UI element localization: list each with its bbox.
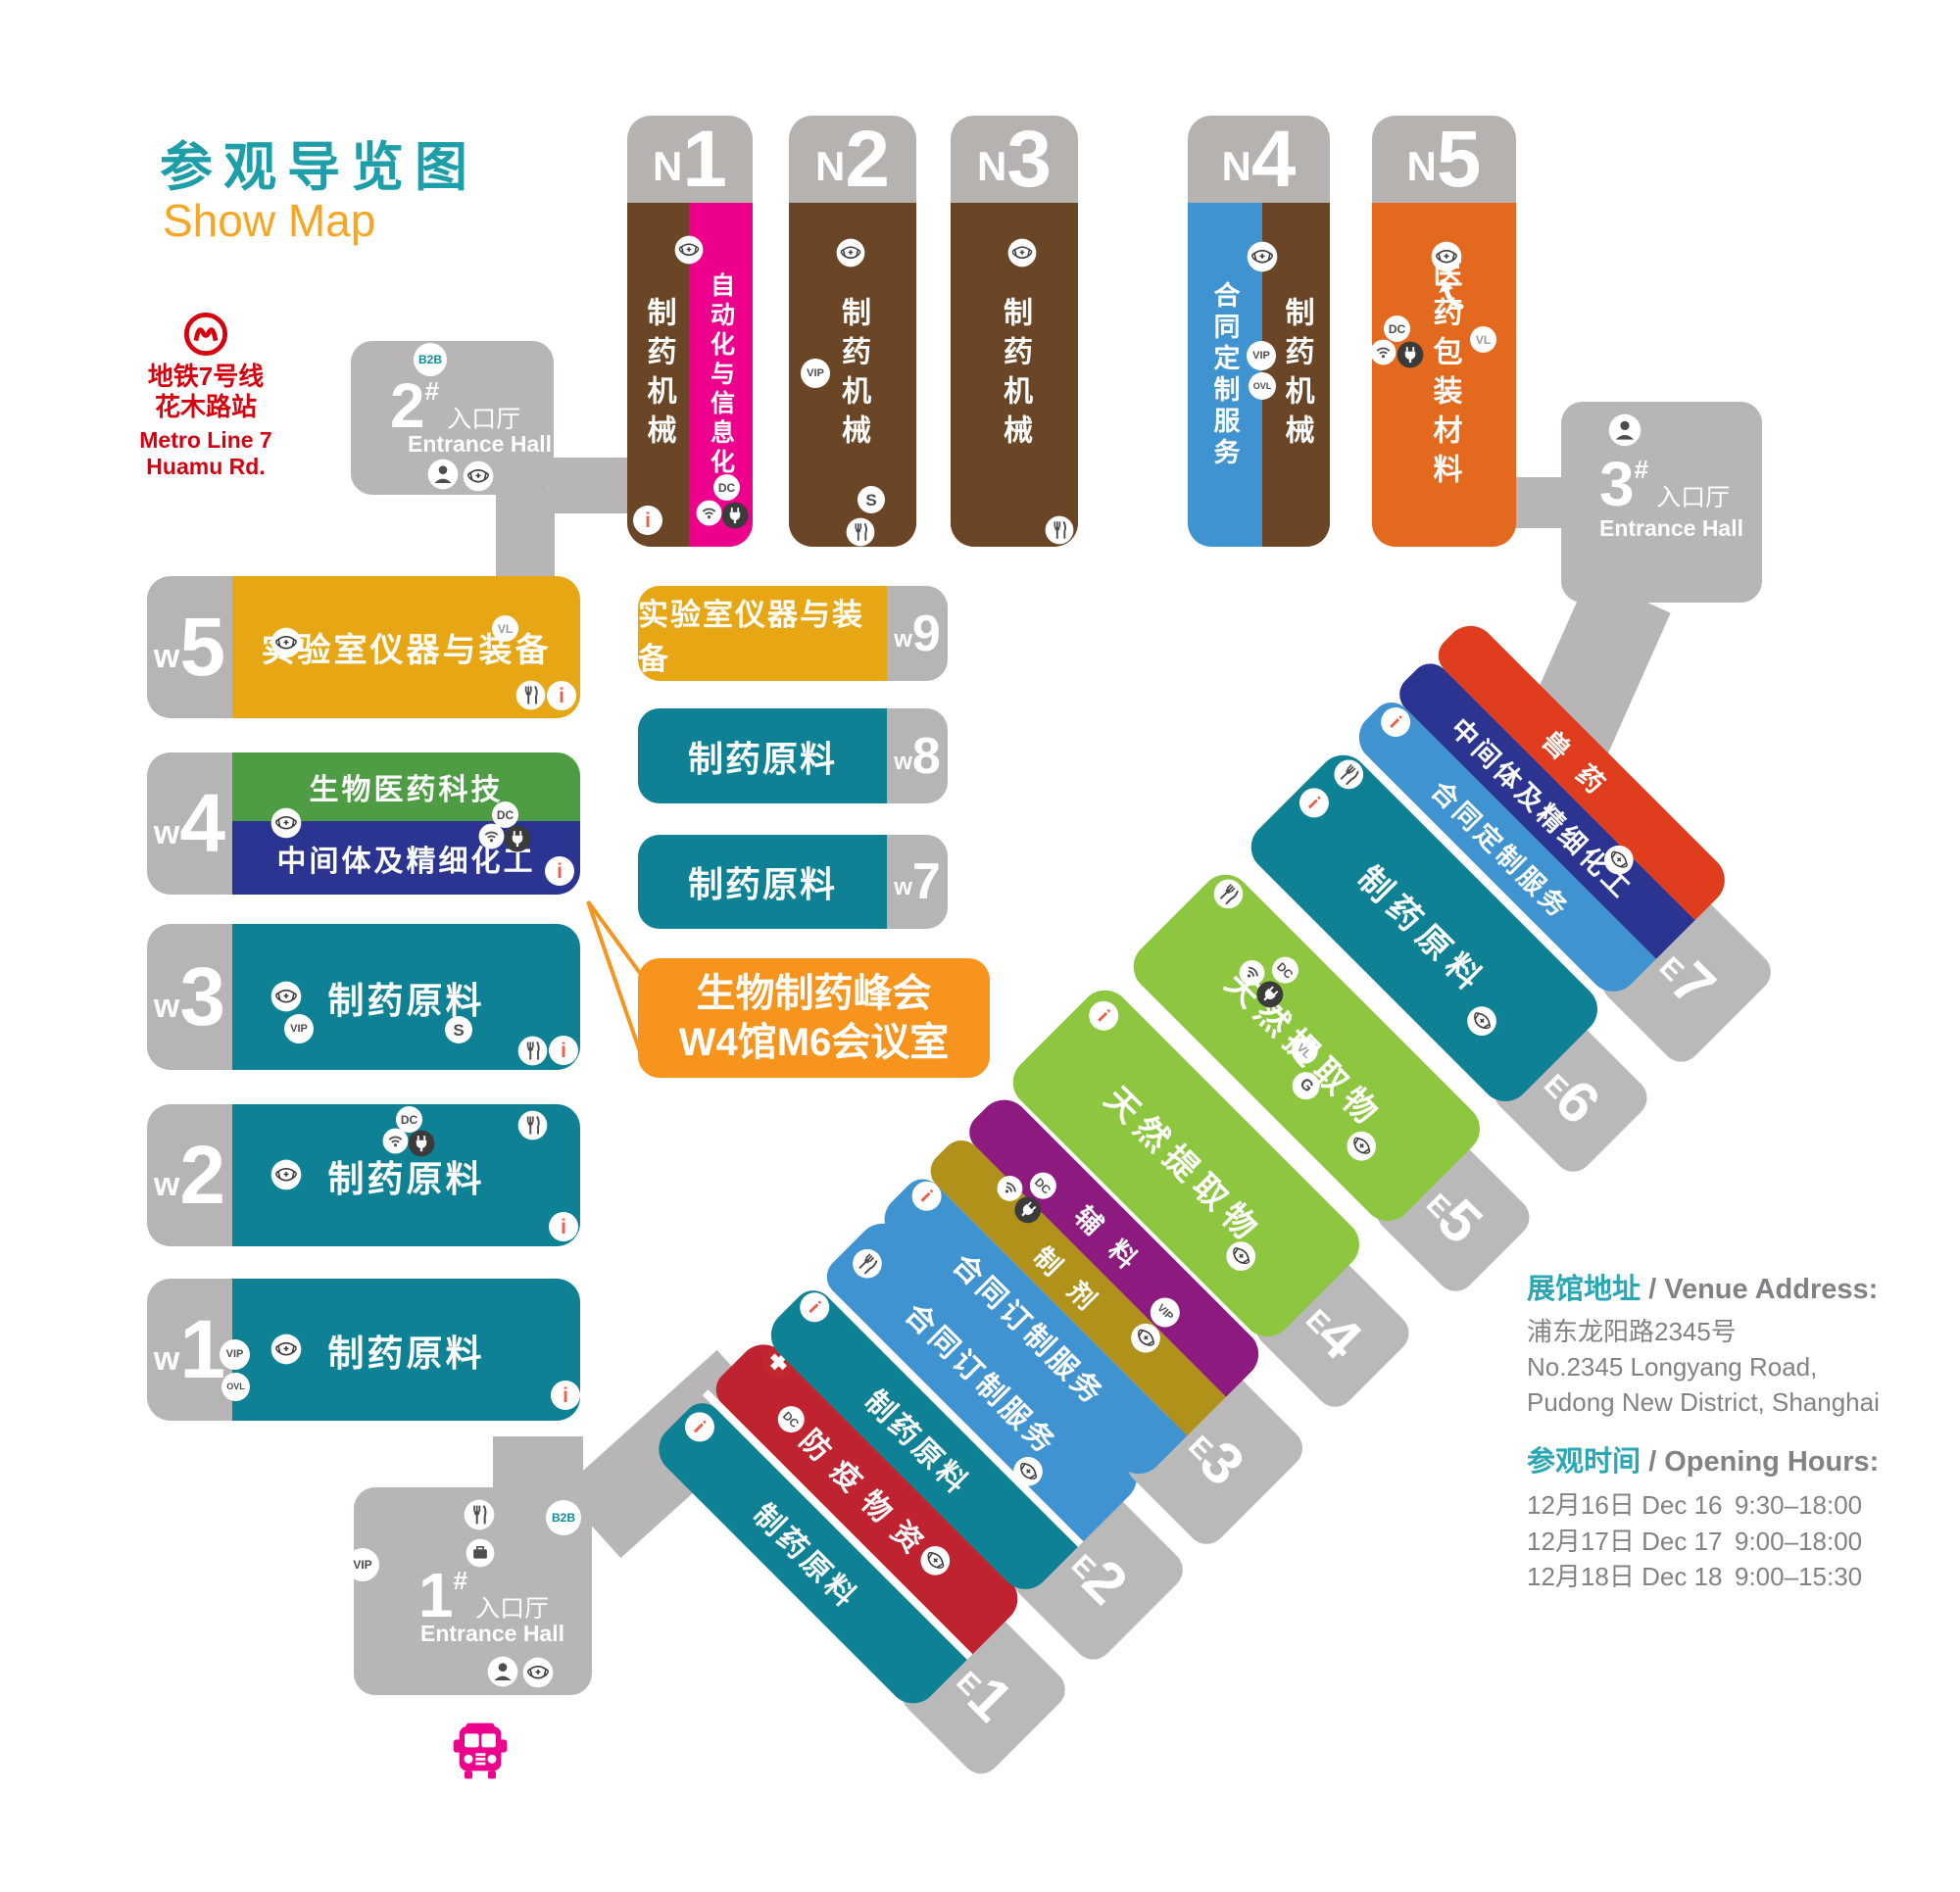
hall-w1-number: 1 — [179, 1302, 225, 1397]
hall-w8-number: 8 — [912, 727, 941, 786]
entrance2-hash: # — [425, 376, 439, 406]
hours-row2-time: 9:00–18:00 — [1735, 1524, 1862, 1560]
mask-icon — [270, 981, 302, 1012]
hall-w8: 制药原料 w8 — [638, 708, 948, 803]
hall-w9-letter: w — [894, 626, 912, 654]
hours-row1-time: 9:30–18:00 — [1735, 1487, 1862, 1524]
mask-icon — [270, 1159, 302, 1190]
show-map-canvas: 参观导览图 Show Map 地铁7号线 花木路站 Metro Line 7 H… — [0, 0, 1960, 1892]
hall-n1-number: 1 — [682, 116, 727, 206]
hall-w8-letter: w — [894, 749, 912, 776]
info-badge: i — [549, 1036, 578, 1065]
info-badge: i — [545, 856, 574, 886]
hall-n2: N2 制药机械 VIP S — [789, 116, 916, 547]
hall-w1: w1 制药原料 VIP OVL i — [147, 1279, 580, 1421]
fork-knife-icon — [515, 680, 546, 710]
venue-address-header-cn: 展馆地址 — [1527, 1274, 1641, 1305]
person-icon — [1608, 413, 1641, 447]
hall-w5-number: 5 — [179, 600, 225, 695]
hours-row3-time: 9:00–15:30 — [1735, 1559, 1862, 1595]
hall-w5: w5 实验室仪器与装备 VL i — [147, 576, 580, 718]
hall-e6-zone1-label: 制药原料 — [1349, 853, 1499, 1003]
plug-icon — [1396, 341, 1424, 368]
hall-w7-zone1-label: 制药原料 — [688, 856, 837, 907]
page-title-cn: 参观导览图 — [160, 123, 478, 201]
hall-w7: 制药原料 w7 — [638, 835, 948, 929]
hours-row2-date-cn: 12月17日 — [1527, 1527, 1635, 1556]
ovl-badge: OVL — [221, 1373, 250, 1401]
hall-n1-header: N1 — [627, 116, 753, 203]
hall-w7-letter: w — [894, 874, 912, 901]
hall-n2-number: 2 — [845, 116, 890, 206]
connector-entrance2-n1 — [549, 458, 637, 513]
opening-hours-header-en: Opening Hours: — [1664, 1446, 1879, 1478]
entrance2-label-cn: 入口厅 — [447, 406, 520, 433]
entrance-hall-3: 3#入口厅 Entrance Hall — [1561, 402, 1762, 603]
hall-w3-label: w3 — [147, 924, 232, 1070]
hall-w4-label: w4 — [147, 752, 232, 895]
vip-badge: VIP — [346, 1548, 379, 1581]
metro-line-en: Metro Line 7 — [127, 427, 284, 454]
s-badge: S — [857, 486, 885, 513]
info-badge: i — [551, 1381, 580, 1410]
page-title-en: Show Map — [163, 194, 375, 247]
metro-station-en: Huamu Rd. — [127, 454, 284, 480]
hall-n5-number: 5 — [1437, 116, 1482, 206]
s-badge: S — [445, 1016, 472, 1043]
hall-w3-number: 3 — [179, 949, 225, 1044]
summit-callout: 生物制药峰会 W4馆M6会议室 — [638, 958, 990, 1078]
fork-knife-icon — [517, 1036, 548, 1066]
opening-hours-header: 参观时间 / Opening Hours: — [1527, 1438, 1938, 1480]
hall-n3-number: 3 — [1006, 116, 1052, 206]
hall-n3-header: N3 — [951, 116, 1078, 203]
metro-station-cn: 花木路站 — [127, 392, 284, 422]
hall-n2-letter: N — [815, 143, 845, 190]
briefcase-icon — [465, 1538, 495, 1568]
opening-hours-row: 12月17日 Dec 17 9:00–18:00 — [1527, 1524, 1938, 1560]
metro-info: 地铁7号线 花木路站 Metro Line 7 Huamu Rd. — [127, 312, 284, 481]
hall-w3-letter: w — [154, 988, 179, 1026]
hall-w4-number: 4 — [179, 776, 225, 871]
hall-n4-zone1-label: 合同定制服务 — [1206, 281, 1245, 469]
hall-n5-letter: N — [1407, 143, 1437, 190]
hall-w5-letter: w — [154, 638, 179, 676]
dc-badge: DC — [1384, 315, 1410, 342]
vip-badge: VIP — [220, 1339, 250, 1370]
hall-n1-zone1-label: 制药机械 — [637, 297, 680, 454]
fork-knife-icon — [464, 1499, 495, 1530]
vip-badge: VIP — [801, 359, 830, 388]
venue-address-separator: / — [1648, 1274, 1656, 1305]
entrance3-label-en: Entrance Hall — [1599, 515, 1743, 542]
opening-hours-header-cn: 参观时间 — [1527, 1446, 1641, 1478]
hall-w2-letter: w — [154, 1166, 179, 1204]
mask-icon — [674, 235, 704, 265]
plug-icon — [504, 825, 531, 852]
hall-w9-label: w9 — [887, 586, 948, 681]
hall-n5: N5 医药包装材料 DC VL — [1372, 116, 1516, 547]
hall-n4: N4 合同定制服务 制药机械 VIP OVL — [1188, 116, 1330, 547]
plug-icon — [408, 1130, 435, 1157]
hall-w1-zone1-label: 制药原料 — [328, 1324, 485, 1377]
venue-address-header: 展馆地址 / Venue Address: — [1527, 1266, 1938, 1307]
hall-w9-number: 9 — [912, 605, 941, 663]
hall-n1-zone2-label: 自动化与信息化 — [704, 272, 739, 478]
entrance1-hash: # — [454, 1566, 467, 1595]
vl-badge: VL — [1470, 326, 1496, 353]
hall-w2-label: w2 — [147, 1104, 232, 1246]
hall-w4-letter: w — [154, 814, 179, 852]
wifi-icon — [1372, 339, 1396, 365]
hours-row1-date-cn: 12月16日 — [1527, 1490, 1635, 1520]
hall-w9: 实验室仪器与装备 w9 — [638, 586, 948, 681]
info-badge: i — [547, 681, 576, 710]
hall-n3-letter: N — [977, 143, 1006, 190]
wifi-icon — [696, 500, 722, 526]
info-badge: i — [633, 506, 662, 535]
mask-icon — [270, 1334, 302, 1365]
wifi-icon — [382, 1128, 409, 1154]
hall-w1-letter: w — [154, 1340, 179, 1379]
b2b-badge: B2B — [546, 1500, 581, 1535]
venue-address-line2: No.2345 Longyang Road, — [1527, 1350, 1938, 1385]
hall-n4-number: 4 — [1251, 116, 1297, 206]
vl-badge: VL — [492, 615, 518, 642]
mask-icon — [1247, 241, 1278, 272]
hall-w4: w4 生物医药科技 中间体及精细化工 DC i — [147, 752, 580, 895]
mask-icon — [270, 627, 302, 658]
hall-w2: w2 制药原料 DC i — [147, 1104, 580, 1246]
hall-w9-zone1-label: 实验室仪器与装备 — [638, 590, 887, 678]
ovl-badge: OVL — [1249, 372, 1276, 400]
hall-n4-zone2-label: 制药机械 — [1275, 297, 1318, 454]
mask-icon — [270, 807, 302, 839]
wifi-icon — [478, 823, 505, 849]
curved-arrow-icon — [1429, 272, 1472, 315]
connector-entrance2-w5 — [496, 488, 555, 578]
summit-callout-line1: 生物制药峰会 — [697, 969, 932, 1018]
hall-n3-zone1-label: 制药机械 — [993, 297, 1036, 454]
vip-badge: VIP — [1247, 341, 1276, 370]
hall-w5-label: w5 — [147, 576, 232, 718]
person-icon — [487, 1656, 518, 1687]
mask-icon — [836, 238, 865, 267]
venue-address-line3: Pudong New District, Shanghai — [1527, 1385, 1938, 1421]
mask-icon — [1007, 238, 1037, 267]
venue-address-header-en: Venue Address: — [1664, 1274, 1878, 1305]
hall-n4-letter: N — [1222, 143, 1251, 190]
hours-row3-date-cn: 12月18日 — [1527, 1562, 1635, 1591]
plug-icon — [721, 502, 749, 529]
hall-n3: N3 制药机械 — [951, 116, 1078, 547]
metro-logo-icon — [183, 312, 228, 357]
hall-w2-zone1-label: 制药原料 — [328, 1149, 485, 1202]
opening-hours-row: 12月16日 Dec 16 9:30–18:00 — [1527, 1487, 1938, 1524]
fork-knife-icon — [1045, 515, 1074, 545]
hours-row1-date-en: Dec 16 — [1641, 1490, 1722, 1520]
entrance3-number: 3 — [1599, 449, 1635, 519]
hall-w3: w3 制药原料 VIP S i — [147, 924, 580, 1070]
entrance3-hash: # — [1635, 455, 1648, 484]
hours-row3-date-en: Dec 18 — [1641, 1562, 1722, 1591]
venue-info: 展馆地址 / Venue Address: 浦东龙阳路2345号 No.2345… — [1527, 1266, 1938, 1595]
person-icon — [427, 459, 459, 490]
fork-knife-icon — [517, 1110, 548, 1140]
vip-badge: VIP — [284, 1014, 314, 1043]
hall-w2-number: 2 — [179, 1128, 225, 1223]
mask-icon — [463, 461, 494, 492]
summit-callout-line2: W4馆M6会议室 — [679, 1018, 950, 1067]
connector-entrance3-n5 — [1509, 477, 1568, 528]
hall-n4-header: N4 — [1188, 116, 1330, 203]
opening-hours-row: 12月18日 Dec 18 9:00–15:30 — [1527, 1559, 1938, 1595]
entrance1-label-en: Entrance Hall — [420, 1621, 564, 1647]
opening-hours-separator: / — [1648, 1446, 1656, 1478]
hall-w8-label: w8 — [887, 708, 948, 803]
hall-n1: N1 制药机械 自动化与信息化 DC i — [627, 116, 753, 547]
entrance3-label-cn: 入口厅 — [1656, 484, 1730, 511]
hall-n5-header: N5 — [1372, 116, 1516, 203]
metro-line-cn: 地铁7号线 — [127, 362, 284, 392]
venue-address-line1: 浦东龙阳路2345号 — [1527, 1315, 1938, 1350]
dc-badge: DC — [713, 474, 740, 501]
hall-n2-zone1-label: 制药机械 — [831, 297, 874, 454]
info-badge: i — [549, 1212, 578, 1241]
fork-knife-icon — [846, 517, 875, 547]
hours-row2-date-en: Dec 17 — [1641, 1527, 1722, 1556]
hall-w8-zone1-label: 制药原料 — [688, 731, 837, 782]
shuttle-bus-icon — [449, 1719, 512, 1781]
entrance1-label-cn: 入口厅 — [475, 1595, 549, 1623]
entrance-hall-1: VIP B2B 1#入口厅 Entrance Hall — [354, 1487, 592, 1695]
hall-n1-letter: N — [653, 143, 682, 190]
mask-icon — [522, 1657, 554, 1688]
b2b-badge: B2B — [414, 343, 447, 376]
hall-w4-zone1-label: 生物医药科技 — [310, 765, 504, 808]
mask-icon — [1431, 241, 1462, 272]
entrance2-label-en: Entrance Hall — [408, 431, 552, 458]
hall-w7-number: 7 — [912, 852, 941, 911]
hall-w7-label: w7 — [887, 835, 948, 929]
entrance-hall-2: B2B 2#入口厅 Entrance Hall — [351, 341, 554, 495]
hall-n2-header: N2 — [789, 116, 916, 203]
